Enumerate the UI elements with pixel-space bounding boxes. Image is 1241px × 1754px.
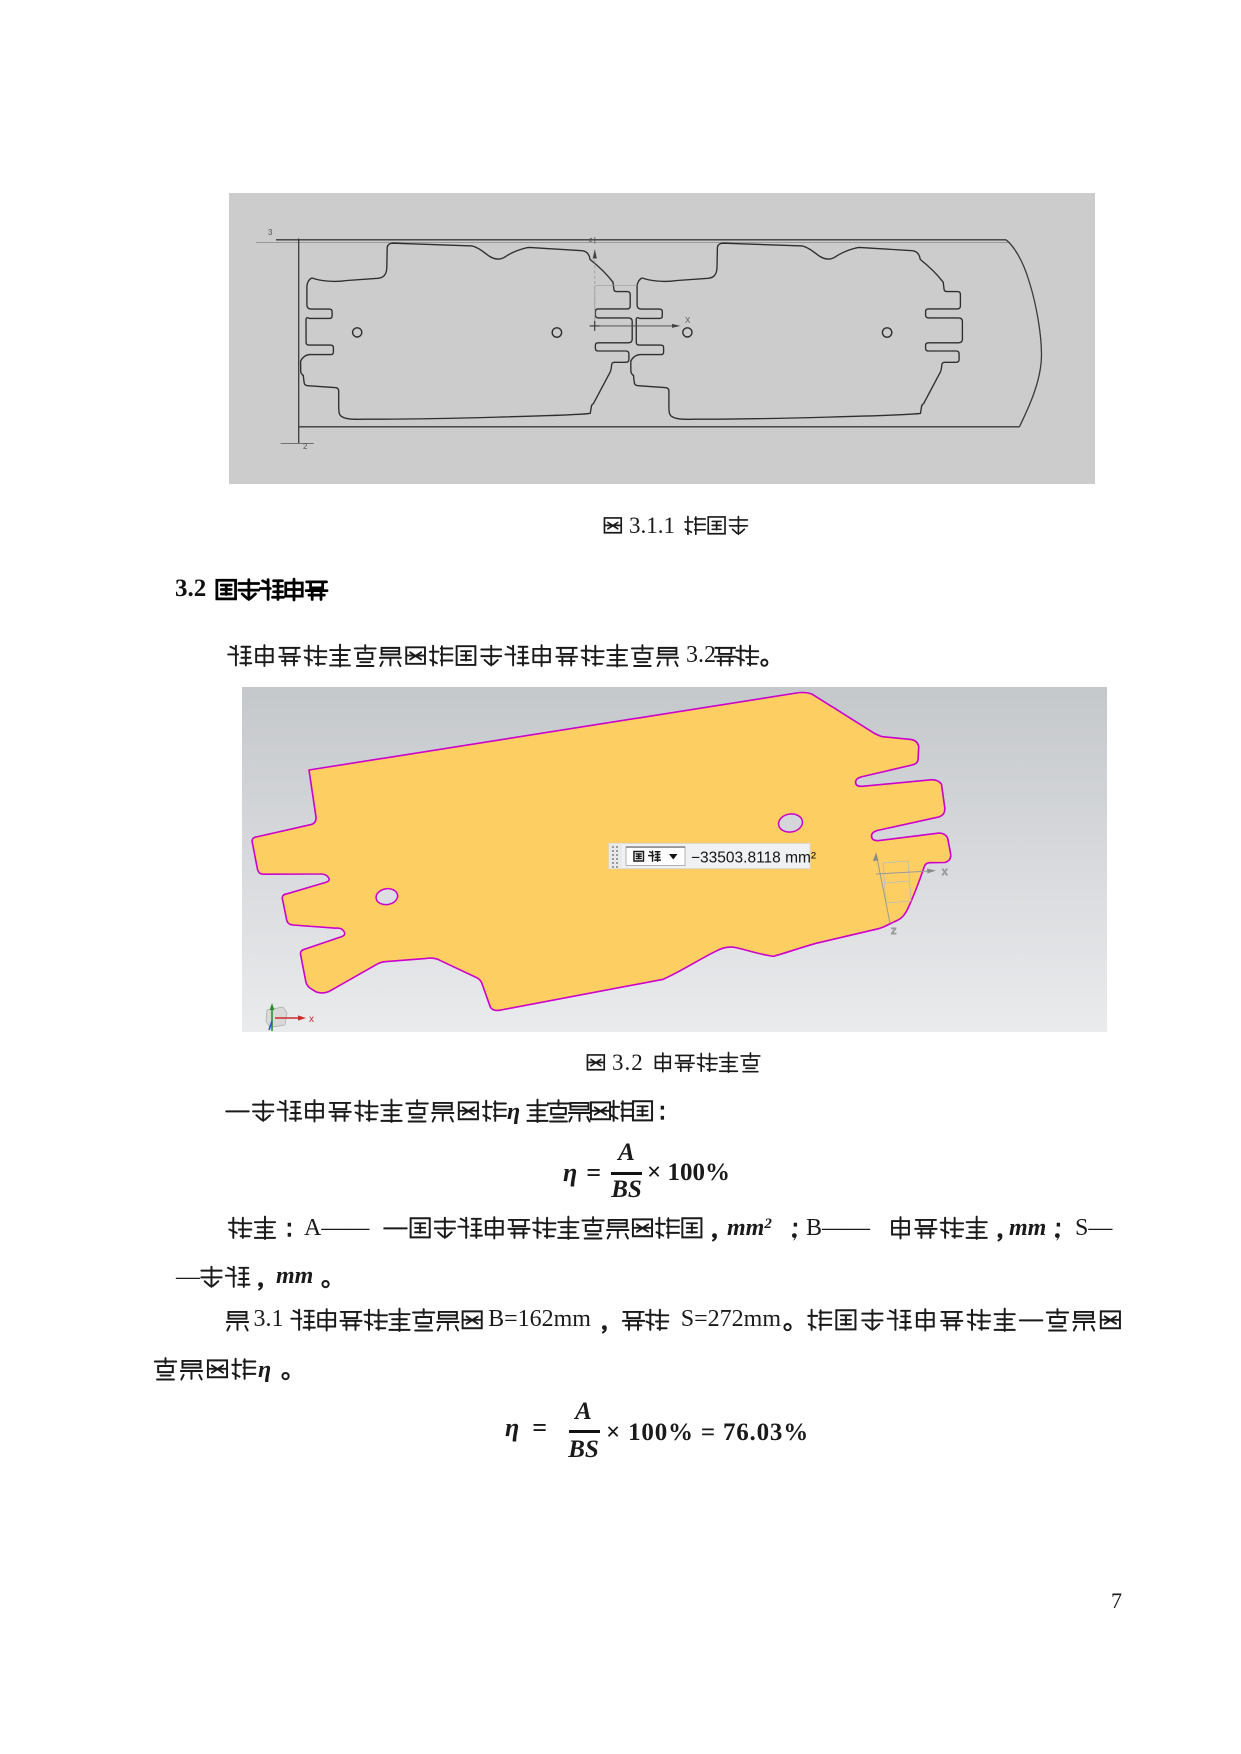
svg-text:X: X — [685, 316, 691, 325]
svg-text:z: z — [891, 925, 897, 937]
svg-text:x: x — [942, 866, 948, 878]
svg-text:x: x — [309, 1014, 314, 1025]
svg-text:−33503.8118 mm²: −33503.8118 mm² — [691, 850, 816, 867]
svg-text:z: z — [589, 237, 593, 244]
svg-text:2: 2 — [303, 442, 308, 451]
svg-text:3: 3 — [268, 228, 273, 237]
